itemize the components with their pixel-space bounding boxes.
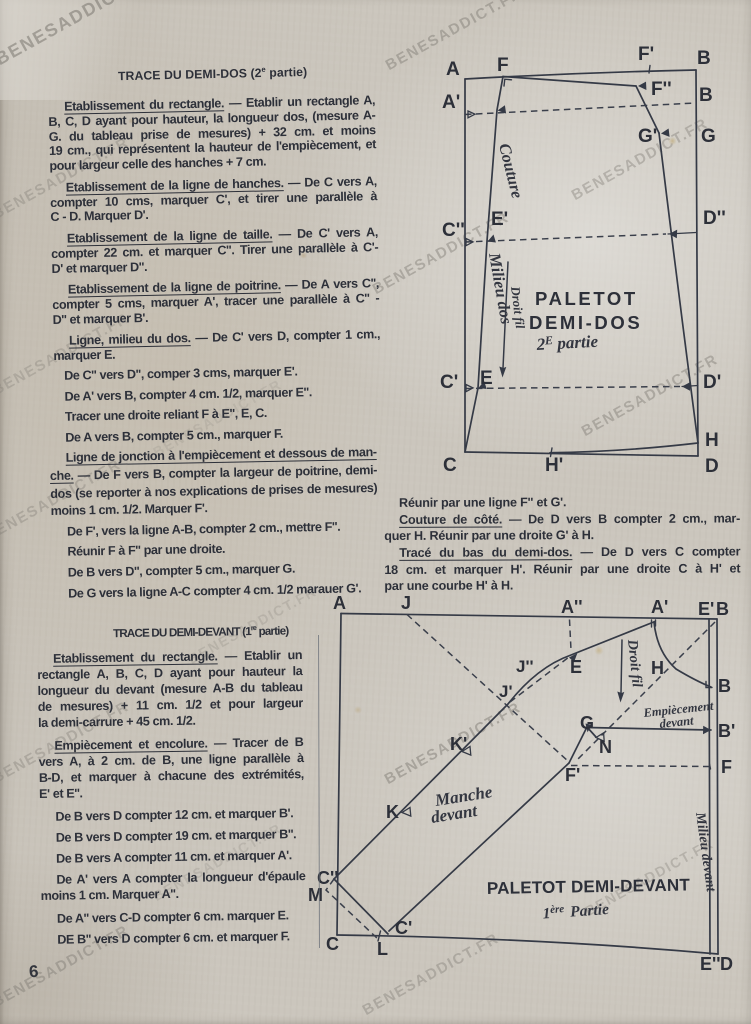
svg-text:C': C': [440, 372, 458, 393]
svg-text:devant: devant: [659, 713, 695, 731]
svg-text:Milieu devant: Milieu devant: [692, 810, 718, 893]
svg-text:PALETOT DEMI-DEVANT: PALETOT DEMI-DEVANT: [487, 875, 691, 898]
svg-text:A'': A'': [561, 597, 583, 617]
svg-text:L: L: [377, 939, 388, 959]
svg-text:C': C': [395, 918, 412, 938]
svg-text:D'': D'': [703, 208, 726, 229]
svg-text:A': A': [651, 597, 668, 617]
svg-text:DEMI-DOS: DEMI-DOS: [529, 312, 642, 333]
svg-text:F'': F'': [651, 79, 672, 100]
svg-text:J: J: [401, 593, 411, 613]
svg-text:M: M: [308, 885, 323, 905]
svg-text:B: B: [699, 85, 713, 106]
svg-text:F: F: [721, 757, 732, 777]
svg-text:G: G: [580, 713, 594, 733]
svg-text:E: E: [480, 368, 493, 389]
svg-text:K': K': [450, 734, 467, 754]
svg-text:A': A': [442, 92, 460, 113]
svg-text:K: K: [386, 802, 399, 822]
svg-text:H: H: [705, 430, 719, 451]
svg-text:C: C: [443, 455, 457, 476]
svg-text:E'': E'': [700, 954, 721, 974]
svg-text:J': J': [499, 682, 513, 701]
svg-text:Couture: Couture: [495, 141, 527, 200]
svg-text:G': G': [638, 126, 657, 147]
svg-text:B': B': [718, 721, 735, 741]
svg-text:B: B: [718, 676, 731, 696]
svg-text:C: C: [326, 934, 339, 954]
svg-text:D: D: [720, 954, 733, 974]
svg-text:F: F: [497, 55, 509, 76]
svg-text:H': H': [545, 455, 563, 476]
svg-text:N: N: [599, 737, 612, 757]
svg-text:A: A: [333, 593, 346, 613]
svg-text:1ère Partie: 1ère Partie: [542, 900, 610, 923]
svg-text:F': F': [638, 44, 654, 65]
svg-text:C'': C'': [442, 220, 465, 241]
svg-text:D': D': [703, 372, 721, 393]
svg-text:H: H: [651, 658, 664, 678]
svg-text:F': F': [565, 765, 580, 785]
svg-text:B: B: [697, 48, 711, 69]
svg-text:E': E': [698, 599, 714, 619]
svg-text:G: G: [701, 126, 716, 147]
svg-text:E': E': [491, 209, 508, 230]
svg-text:Droit fil: Droit fil: [624, 638, 645, 688]
svg-text:E: E: [570, 657, 582, 677]
svg-text:A: A: [446, 59, 460, 80]
svg-text:PALETOT: PALETOT: [535, 288, 638, 309]
svg-text:B: B: [716, 599, 729, 619]
svg-text:J'': J'': [516, 657, 534, 676]
svg-text:2E partie: 2E partie: [535, 331, 599, 354]
svg-text:D: D: [705, 456, 719, 477]
